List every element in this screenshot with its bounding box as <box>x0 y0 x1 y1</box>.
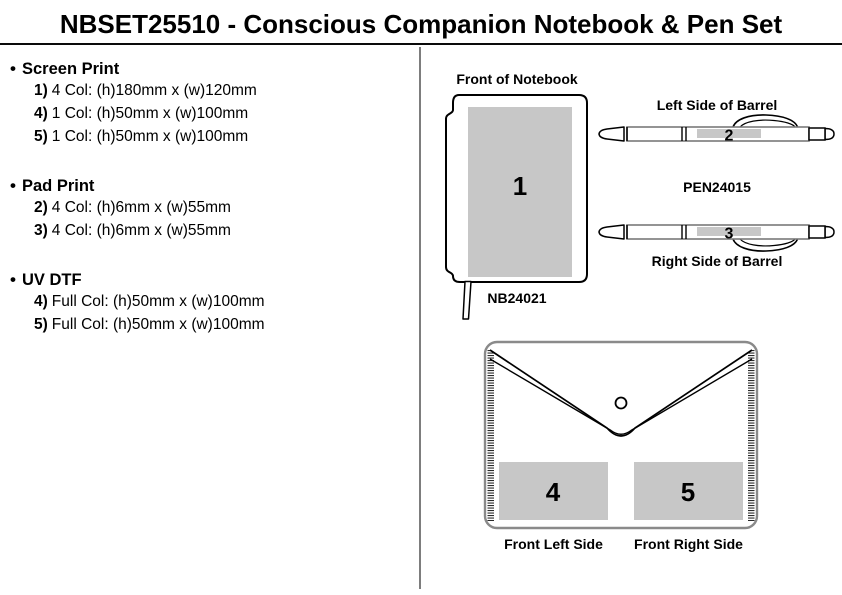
item-text: Full Col: (h)50mm x (w)100mm <box>52 316 265 333</box>
section-heading: •Screen Print <box>10 59 415 79</box>
spec-item: 5)1 Col: (h)50mm x (w)100mm <box>10 125 415 148</box>
item-number: 3) <box>34 222 48 239</box>
spec-section-pad-print: •Pad Print 2)4 Col: (h)6mm x (w)55mm 3)4… <box>10 176 415 242</box>
print-specs-column: •Screen Print 1)4 Col: (h)180mm x (w)120… <box>0 46 415 336</box>
spec-item: 1)4 Col: (h)180mm x (w)120mm <box>10 79 415 102</box>
section-heading-label: Pad Print <box>22 177 94 195</box>
spec-item: 4)Full Col: (h)50mm x (w)100mm <box>10 290 415 313</box>
item-number: 1) <box>34 82 48 99</box>
page-header: NBSET25510 - Conscious Companion Noteboo… <box>0 0 842 45</box>
item-text: Full Col: (h)50mm x (w)100mm <box>52 293 265 310</box>
item-text: 4 Col: (h)180mm x (w)120mm <box>52 82 257 99</box>
print-area-number-4: 4 <box>546 477 561 507</box>
pen-right-side-label: Right Side of Barrel <box>597 253 837 269</box>
section-heading: •Pad Print <box>10 176 415 196</box>
pouch-stitch-left <box>488 349 495 521</box>
page-title: NBSET25510 - Conscious Companion Noteboo… <box>0 0 842 40</box>
pouch-snap-button <box>616 398 627 409</box>
pen-end-cap <box>809 226 825 238</box>
spec-section-uv-dtf: •UV DTF 4)Full Col: (h)50mm x (w)100mm 5… <box>10 270 415 336</box>
bullet-icon: • <box>10 59 22 79</box>
spec-item: 4)1 Col: (h)50mm x (w)100mm <box>10 102 415 125</box>
item-text: 4 Col: (h)6mm x (w)55mm <box>52 199 231 216</box>
pouch-front-left-label: Front Left Side <box>499 536 608 552</box>
spec-section-screen-print: •Screen Print 1)4 Col: (h)180mm x (w)120… <box>10 59 415 148</box>
item-number: 2) <box>34 199 48 216</box>
item-text: 1 Col: (h)50mm x (w)100mm <box>52 128 248 145</box>
item-text: 4 Col: (h)6mm x (w)55mm <box>52 222 231 239</box>
print-area-number-3: 3 <box>725 226 734 243</box>
pen-code: PEN24015 <box>597 179 837 195</box>
item-number: 4) <box>34 293 48 310</box>
spec-item: 5)Full Col: (h)50mm x (w)100mm <box>10 313 415 336</box>
pen-end-dome <box>825 129 834 140</box>
section-heading-label: Screen Print <box>22 60 119 78</box>
spec-item: 2)4 Col: (h)6mm x (w)55mm <box>10 196 415 219</box>
pen-tip <box>599 225 624 239</box>
pouch-diagram: 4 5 <box>483 340 759 530</box>
notebook-front-label: Front of Notebook <box>444 71 590 87</box>
pen-clip-inner <box>740 120 795 127</box>
pouch-front-right-label: Front Right Side <box>634 536 743 552</box>
pen-clip-inner <box>740 239 795 246</box>
pen-end-dome <box>825 227 834 238</box>
item-number: 4) <box>34 105 48 122</box>
bullet-icon: • <box>10 270 22 290</box>
pen-tip <box>599 127 624 141</box>
pen-end-cap <box>809 128 825 140</box>
section-heading-label: UV DTF <box>22 271 82 289</box>
print-area-number-1: 1 <box>513 171 527 201</box>
bullet-icon: • <box>10 176 22 196</box>
content-divider <box>419 47 421 589</box>
print-area-number-2: 2 <box>725 128 734 145</box>
pen-right-side-diagram: 3 <box>597 209 837 255</box>
print-area-number-5: 5 <box>681 477 695 507</box>
item-text: 1 Col: (h)50mm x (w)100mm <box>52 105 248 122</box>
item-number: 5) <box>34 128 48 145</box>
pouch-stitch-right <box>748 349 755 521</box>
notebook-code: NB24021 <box>444 290 590 306</box>
pen-left-side-diagram: 2 <box>597 111 837 157</box>
section-heading: •UV DTF <box>10 270 415 290</box>
spec-item: 3)4 Col: (h)6mm x (w)55mm <box>10 219 415 242</box>
item-number: 5) <box>34 316 48 333</box>
